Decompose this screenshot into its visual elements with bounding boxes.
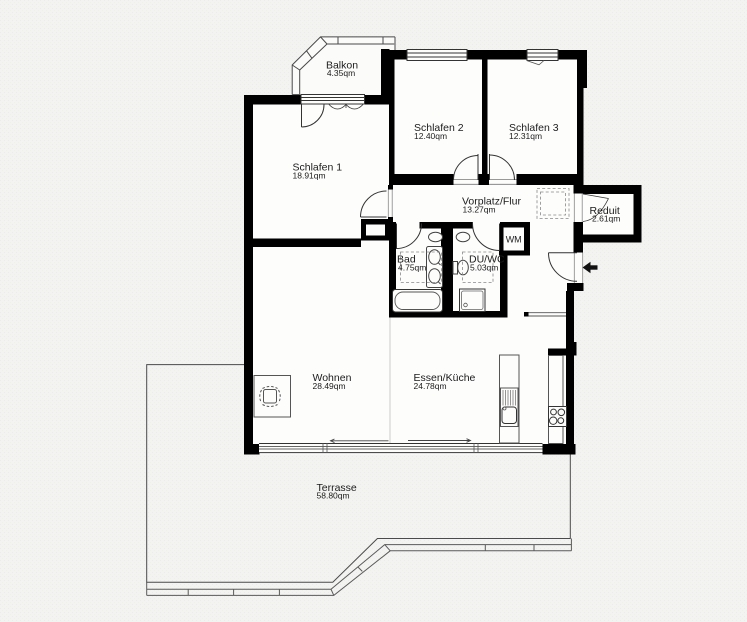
svg-text:2.61qm: 2.61qm bbox=[592, 214, 620, 224]
svg-text:12.40qm: 12.40qm bbox=[414, 131, 447, 141]
svg-text:12.31qm: 12.31qm bbox=[509, 131, 542, 141]
svg-text:18.91qm: 18.91qm bbox=[293, 171, 326, 181]
svg-text:28.49qm: 28.49qm bbox=[313, 381, 346, 391]
svg-text:4.35qm: 4.35qm bbox=[327, 68, 355, 78]
svg-text:13.27qm: 13.27qm bbox=[463, 205, 496, 215]
svg-text:58.80qm: 58.80qm bbox=[317, 491, 350, 501]
svg-text:24.78qm: 24.78qm bbox=[414, 381, 447, 391]
svg-text:4.75qm: 4.75qm bbox=[398, 263, 426, 273]
svg-text:WM: WM bbox=[506, 235, 522, 245]
svg-text:5.03qm: 5.03qm bbox=[470, 263, 498, 273]
